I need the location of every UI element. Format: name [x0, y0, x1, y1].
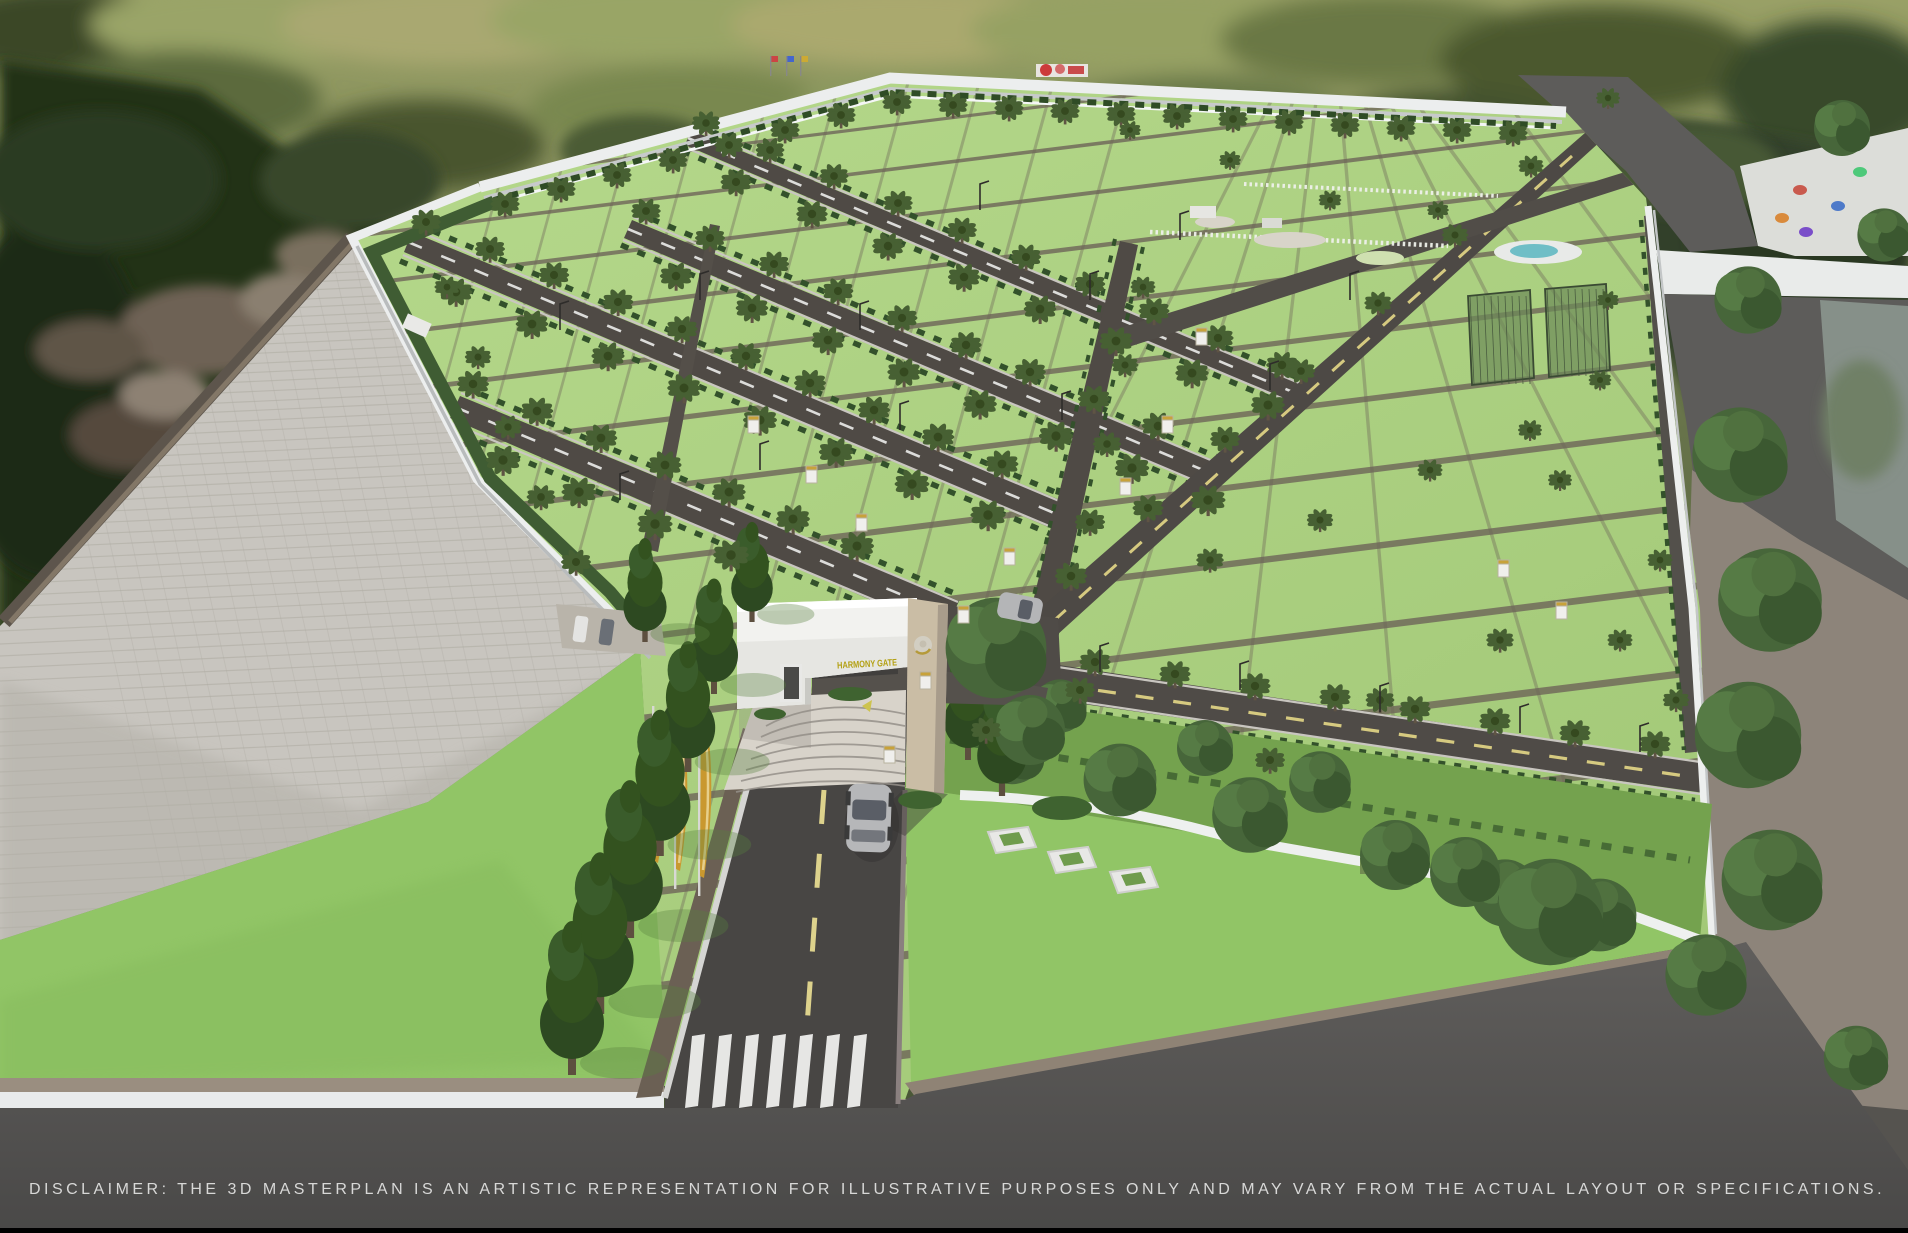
svg-text:DISCLAIMER: THE 3D MASTERPLAN: DISCLAIMER: THE 3D MASTERPLAN IS AN ARTI… [29, 1181, 1885, 1198]
